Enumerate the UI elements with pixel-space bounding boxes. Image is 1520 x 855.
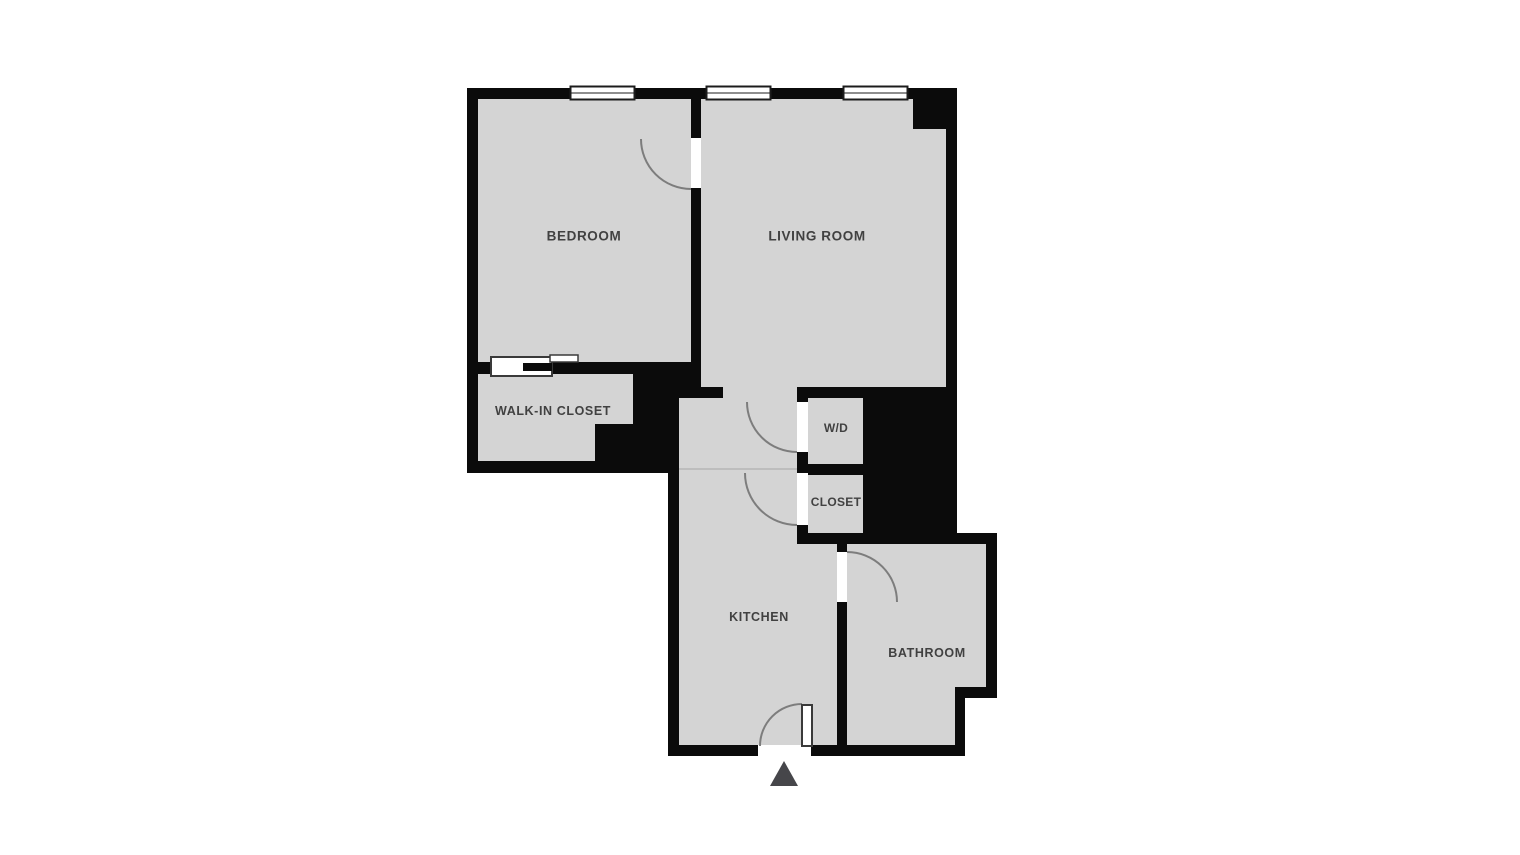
window-icon xyxy=(707,87,771,100)
living-room-label: LIVING ROOM xyxy=(768,229,865,244)
closet-label: CLOSET xyxy=(811,495,861,509)
kitchen-label: KITCHEN xyxy=(729,610,789,624)
closet-door-arc-icon xyxy=(745,473,797,525)
entrance-marker-icon xyxy=(770,761,798,786)
entry-door-arc-icon xyxy=(760,704,802,746)
bathroom-door-arc-icon xyxy=(847,552,897,602)
wd-label: W/D xyxy=(824,421,848,435)
window-icon xyxy=(844,87,908,100)
window-icon xyxy=(571,87,635,100)
bedroom-label: BEDROOM xyxy=(547,229,622,244)
sliding-door-icon xyxy=(491,355,578,376)
walk-in-closet-label: WALK-IN CLOSET xyxy=(495,404,611,418)
floor-plan: BEDROOM LIVING ROOM WALK-IN CLOSET W/D C… xyxy=(0,0,1520,855)
entry-door-leaf-icon xyxy=(802,705,812,746)
bedroom-door-arc-icon xyxy=(641,139,691,189)
floorplan-symbols xyxy=(0,0,1520,855)
bathroom-label: BATHROOM xyxy=(888,646,965,660)
wd-door-arc-icon xyxy=(747,402,797,452)
